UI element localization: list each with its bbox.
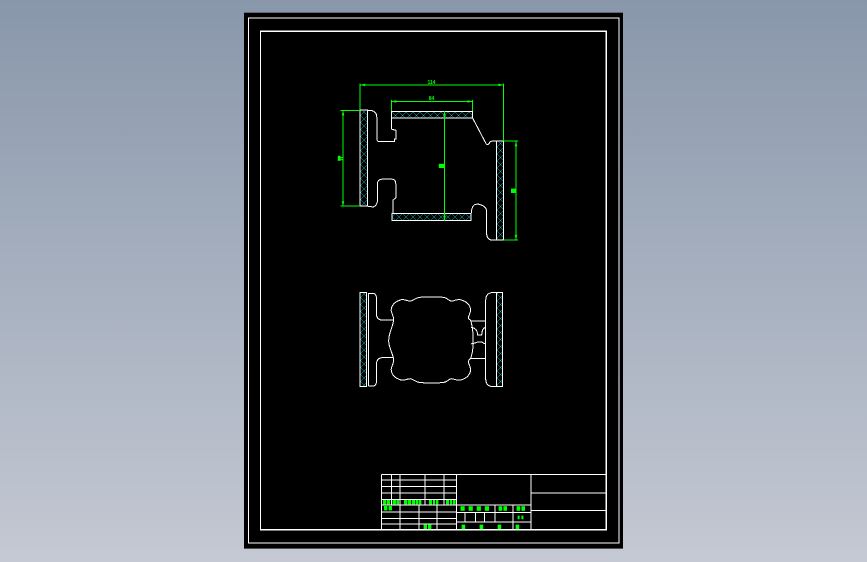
svg-text:114: 114 xyxy=(427,80,435,86)
svg-text:84: 84 xyxy=(429,96,435,102)
